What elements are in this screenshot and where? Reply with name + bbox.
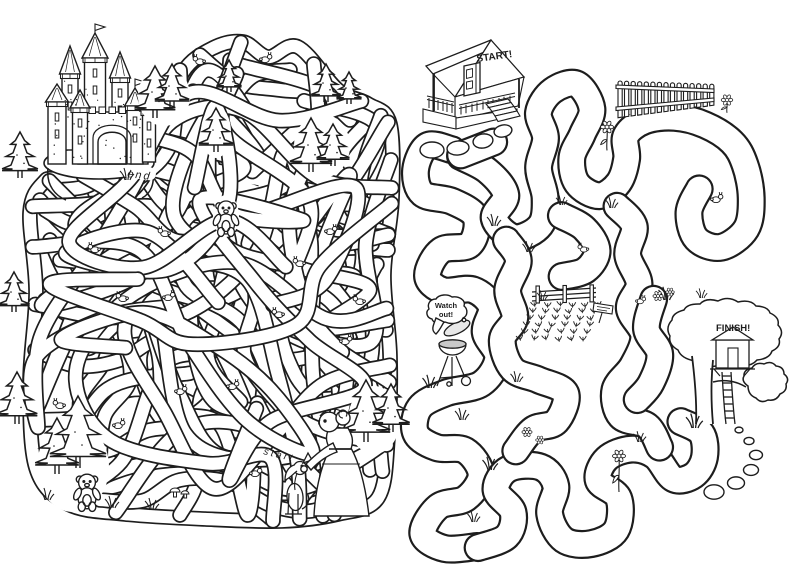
- svg-text:FINISH!: FINISH!: [716, 323, 750, 334]
- svg-text:out!: out!: [439, 310, 453, 319]
- svg-text:Watch: Watch: [435, 301, 458, 310]
